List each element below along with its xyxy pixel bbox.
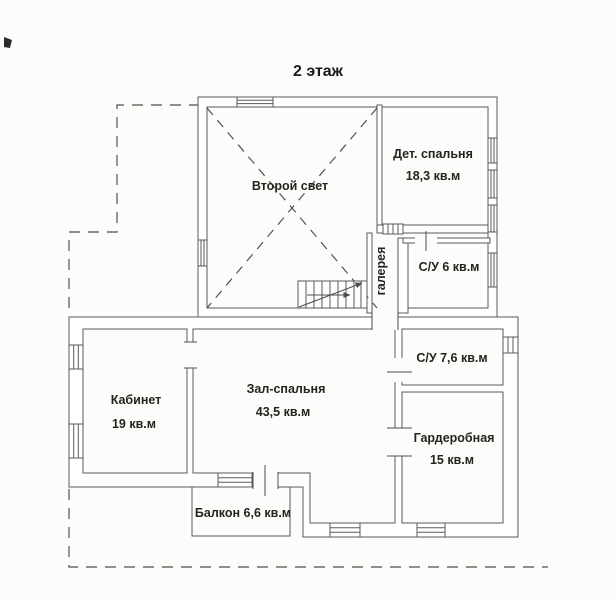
room-name: Второй свет bbox=[252, 179, 328, 193]
room-area: 19 кв.м bbox=[112, 417, 156, 431]
window-icon bbox=[218, 473, 252, 487]
window-icon bbox=[488, 253, 497, 287]
door-su76 bbox=[387, 358, 412, 382]
window-icon bbox=[488, 170, 497, 198]
window-icon bbox=[488, 205, 497, 232]
window-icon bbox=[237, 97, 273, 107]
label-kabinet: Кабинет 19 кв.м bbox=[111, 393, 162, 431]
label-su76: С/У 7,6 кв.м bbox=[416, 351, 487, 365]
room-name: Балкон 6,6 кв.м bbox=[195, 506, 291, 520]
window-icon bbox=[417, 523, 445, 537]
label-galereya: галерея bbox=[374, 247, 388, 296]
label-garderobnaya: Гардеробная 15 кв.м bbox=[414, 431, 495, 467]
window-icon bbox=[69, 345, 83, 369]
label-det-spalnya: Дет. спальня 18,3 кв.м bbox=[393, 147, 473, 183]
window-icon bbox=[198, 240, 207, 266]
room-name: Кабинет bbox=[111, 393, 162, 407]
door-balkon bbox=[253, 465, 278, 496]
room-name: Гардеробная bbox=[414, 431, 495, 445]
room-name: галерея bbox=[374, 247, 388, 296]
window-icon bbox=[330, 523, 360, 537]
room-area: 18,3 кв.м bbox=[406, 169, 460, 183]
door-su6 bbox=[415, 231, 437, 251]
room-area: 15 кв.м bbox=[430, 453, 474, 467]
window-icon bbox=[488, 138, 497, 163]
void-cross-dashed bbox=[207, 108, 377, 308]
label-su6: С/У 6 кв.м bbox=[419, 260, 480, 274]
label-vtoroy-svet: Второй свет bbox=[252, 179, 328, 193]
floor-plan-svg: 2 этаж bbox=[0, 0, 615, 600]
room-name: С/У 7,6 кв.м bbox=[416, 351, 487, 365]
floor-plan-page: 2 этаж bbox=[0, 0, 615, 600]
room-name: С/У 6 кв.м bbox=[419, 260, 480, 274]
door-kabinet bbox=[184, 342, 197, 368]
scan-artifact bbox=[4, 37, 12, 48]
room-area: 43,5 кв.м bbox=[256, 405, 310, 419]
window-icon bbox=[69, 424, 83, 458]
door-galereya bbox=[372, 307, 398, 330]
label-balkon: Балкон 6,6 кв.м bbox=[195, 506, 291, 520]
window-icon bbox=[503, 337, 518, 353]
door-garderobnaya bbox=[387, 428, 412, 456]
room-name: Дет. спальня bbox=[393, 147, 473, 161]
room-name: Зал-спальня bbox=[247, 382, 326, 396]
door-det-spalnya bbox=[383, 224, 403, 234]
label-zal-spalnya: Зал-спальня 43,5 кв.м bbox=[247, 382, 326, 419]
stairs bbox=[298, 281, 367, 308]
floor-title: 2 этаж bbox=[293, 63, 344, 80]
